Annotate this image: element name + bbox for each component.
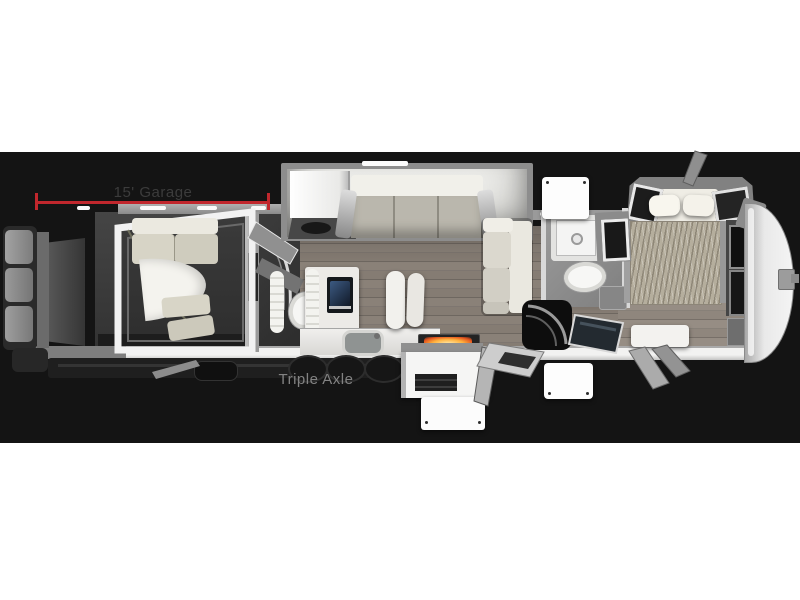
entry-door-glass bbox=[569, 315, 623, 353]
landing-gear-legs bbox=[629, 345, 690, 389]
bedroom-step-arcs bbox=[526, 306, 566, 346]
garage-dimension-label: 15' Garage bbox=[88, 184, 218, 201]
dimension-tick-right bbox=[267, 193, 270, 210]
triple-axle-label: Triple Axle bbox=[256, 371, 376, 389]
underbody-strut bbox=[152, 360, 200, 379]
dimension-line bbox=[36, 201, 269, 204]
rv-floorplan-image: 15' Garage Triple Axle bbox=[0, 0, 800, 600]
roof-jack-arm bbox=[683, 151, 707, 186]
dimension-tick-left bbox=[35, 193, 38, 210]
exterior-detail-layer bbox=[0, 0, 800, 600]
